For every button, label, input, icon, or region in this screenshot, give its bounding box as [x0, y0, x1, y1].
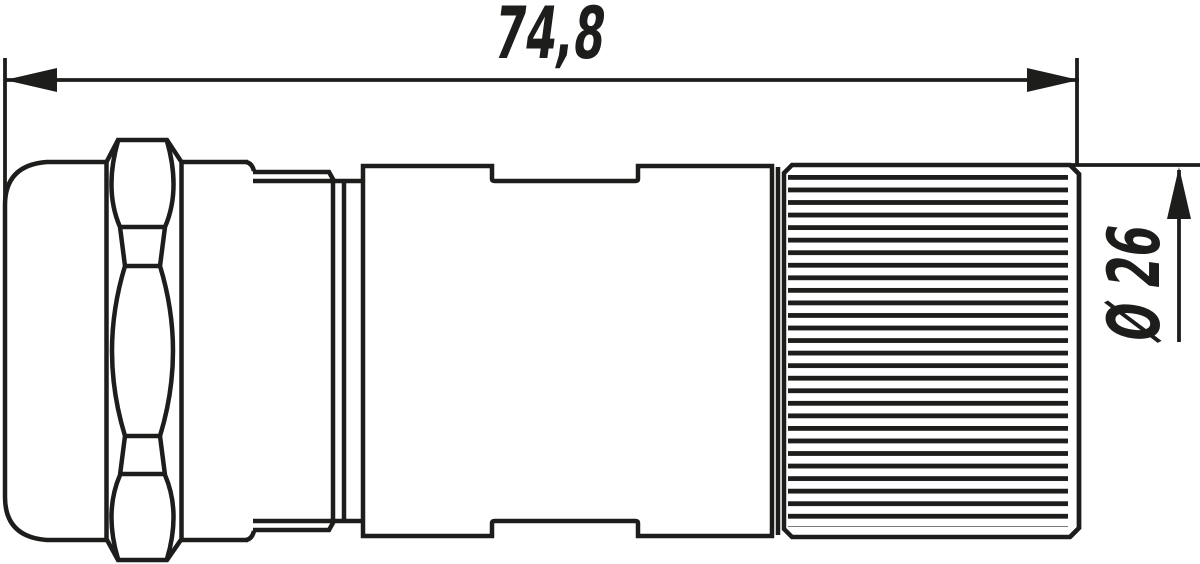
- technical-drawing-page: 74,8 Ø 26: [0, 0, 1200, 564]
- knurl-ribs: [788, 175, 1068, 527]
- arrowhead-right: [1027, 68, 1079, 92]
- diameter-dimension: Ø 26: [1070, 165, 1200, 346]
- locking-ring: [333, 181, 344, 521]
- housing-outline: [363, 166, 772, 536]
- length-dimension-label: 74,8: [490, 0, 611, 76]
- housing-body: [363, 166, 778, 536]
- knurled-coupling-nut: [784, 165, 1079, 537]
- connector-drawing-canvas: 74,8 Ø 26: [0, 0, 1200, 564]
- diameter-dimension-label: Ø 26: [1093, 220, 1177, 347]
- gland-step-bottom: [246, 531, 254, 540]
- gland-hex-nut: [107, 140, 182, 560]
- gland-step-top: [246, 162, 254, 171]
- connector-side-view: [5, 140, 1079, 560]
- arrowhead-up: [1167, 167, 1191, 219]
- arrowhead-left: [5, 68, 57, 92]
